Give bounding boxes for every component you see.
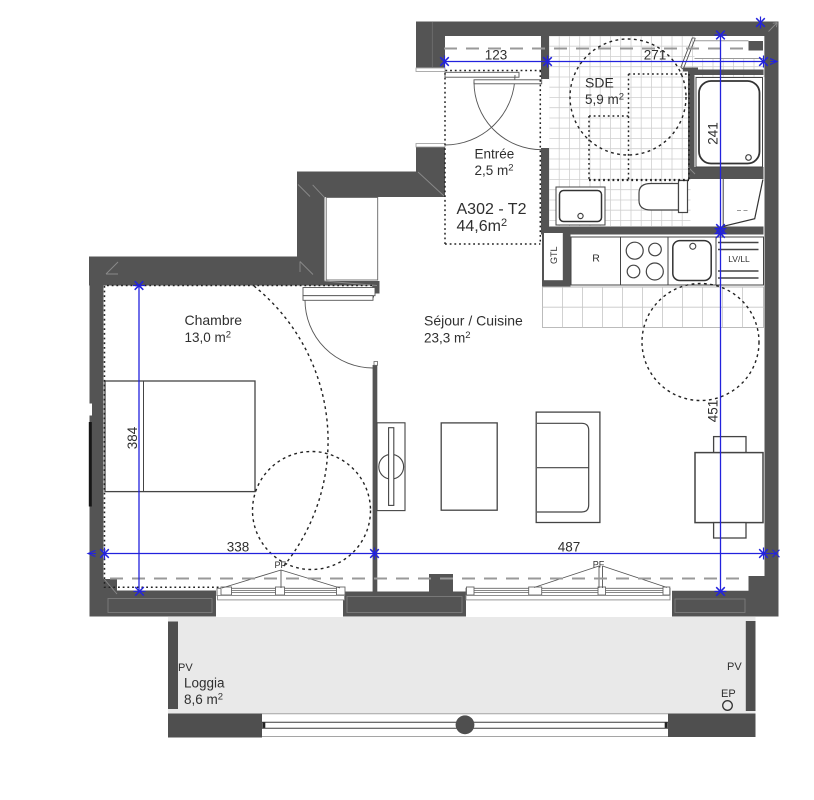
svg-text:271: 271 bbox=[644, 48, 667, 63]
svg-text:Séjour / Cuisine: Séjour / Cuisine bbox=[424, 313, 523, 329]
svg-text:5,9 m2: 5,9 m2 bbox=[585, 92, 624, 108]
svg-text:R: R bbox=[592, 253, 600, 265]
svg-text:13,0 m2: 13,0 m2 bbox=[185, 330, 232, 346]
svg-text:241: 241 bbox=[706, 122, 721, 145]
svg-text:338: 338 bbox=[227, 540, 250, 555]
svg-text:SDE: SDE bbox=[585, 75, 614, 91]
svg-text:LV/LL: LV/LL bbox=[728, 254, 750, 264]
svg-text:2,5 m2: 2,5 m2 bbox=[475, 163, 514, 179]
svg-text:487: 487 bbox=[558, 540, 581, 555]
svg-text:A302 - T2: A302 - T2 bbox=[457, 201, 527, 218]
svg-text:384: 384 bbox=[125, 426, 140, 449]
svg-text:44,6m2: 44,6m2 bbox=[457, 217, 508, 235]
svg-text:PF: PF bbox=[275, 560, 287, 570]
svg-text:EP: EP bbox=[721, 688, 736, 700]
svg-text:8,6 m2: 8,6 m2 bbox=[184, 692, 223, 708]
svg-text:GTL: GTL bbox=[549, 246, 559, 264]
svg-text:451: 451 bbox=[706, 400, 721, 423]
svg-text:PF: PF bbox=[593, 560, 605, 570]
svg-text:23,3 m2: 23,3 m2 bbox=[424, 330, 471, 346]
svg-text:PV: PV bbox=[727, 661, 742, 673]
svg-text:Entrée: Entrée bbox=[475, 147, 515, 162]
svg-text:123: 123 bbox=[485, 48, 508, 63]
svg-text:PV: PV bbox=[178, 662, 193, 674]
svg-text:Loggia: Loggia bbox=[184, 676, 225, 691]
svg-text:Chambre: Chambre bbox=[185, 312, 243, 328]
